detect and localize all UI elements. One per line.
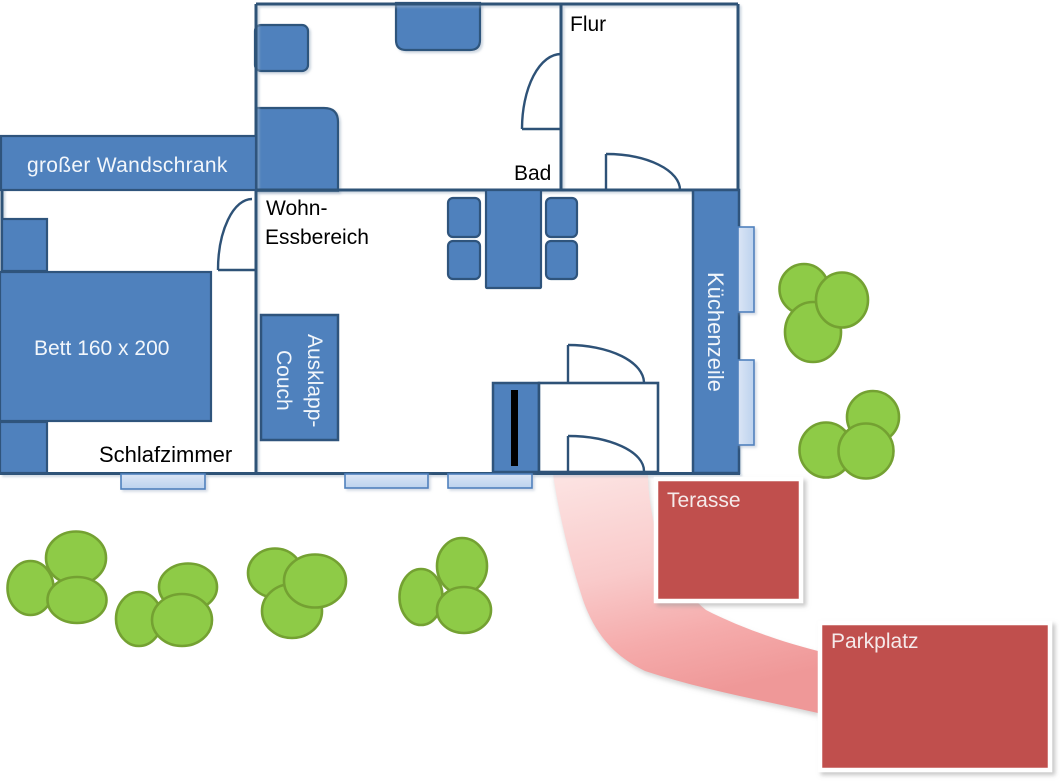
svg-text:Schlafzimmer: Schlafzimmer [99,442,232,467]
svg-text:Bett 160 x 200: Bett 160 x 200 [34,337,169,360]
svg-text:Ausklapp-: Ausklapp- [303,334,326,427]
svg-text:Bad: Bad [514,162,551,185]
svg-text:Parkplatz: Parkplatz [831,630,919,653]
svg-text:Wohn-: Wohn- [266,197,327,220]
svg-text:Terasse: Terasse [667,489,741,512]
svg-text:Küchenzeile: Küchenzeile [703,272,728,392]
svg-text:Couch: Couch [272,350,295,411]
svg-text:großer Wandschrank: großer Wandschrank [27,154,228,177]
svg-text:Essbereich: Essbereich [265,226,369,249]
svg-text:Flur: Flur [570,13,606,36]
